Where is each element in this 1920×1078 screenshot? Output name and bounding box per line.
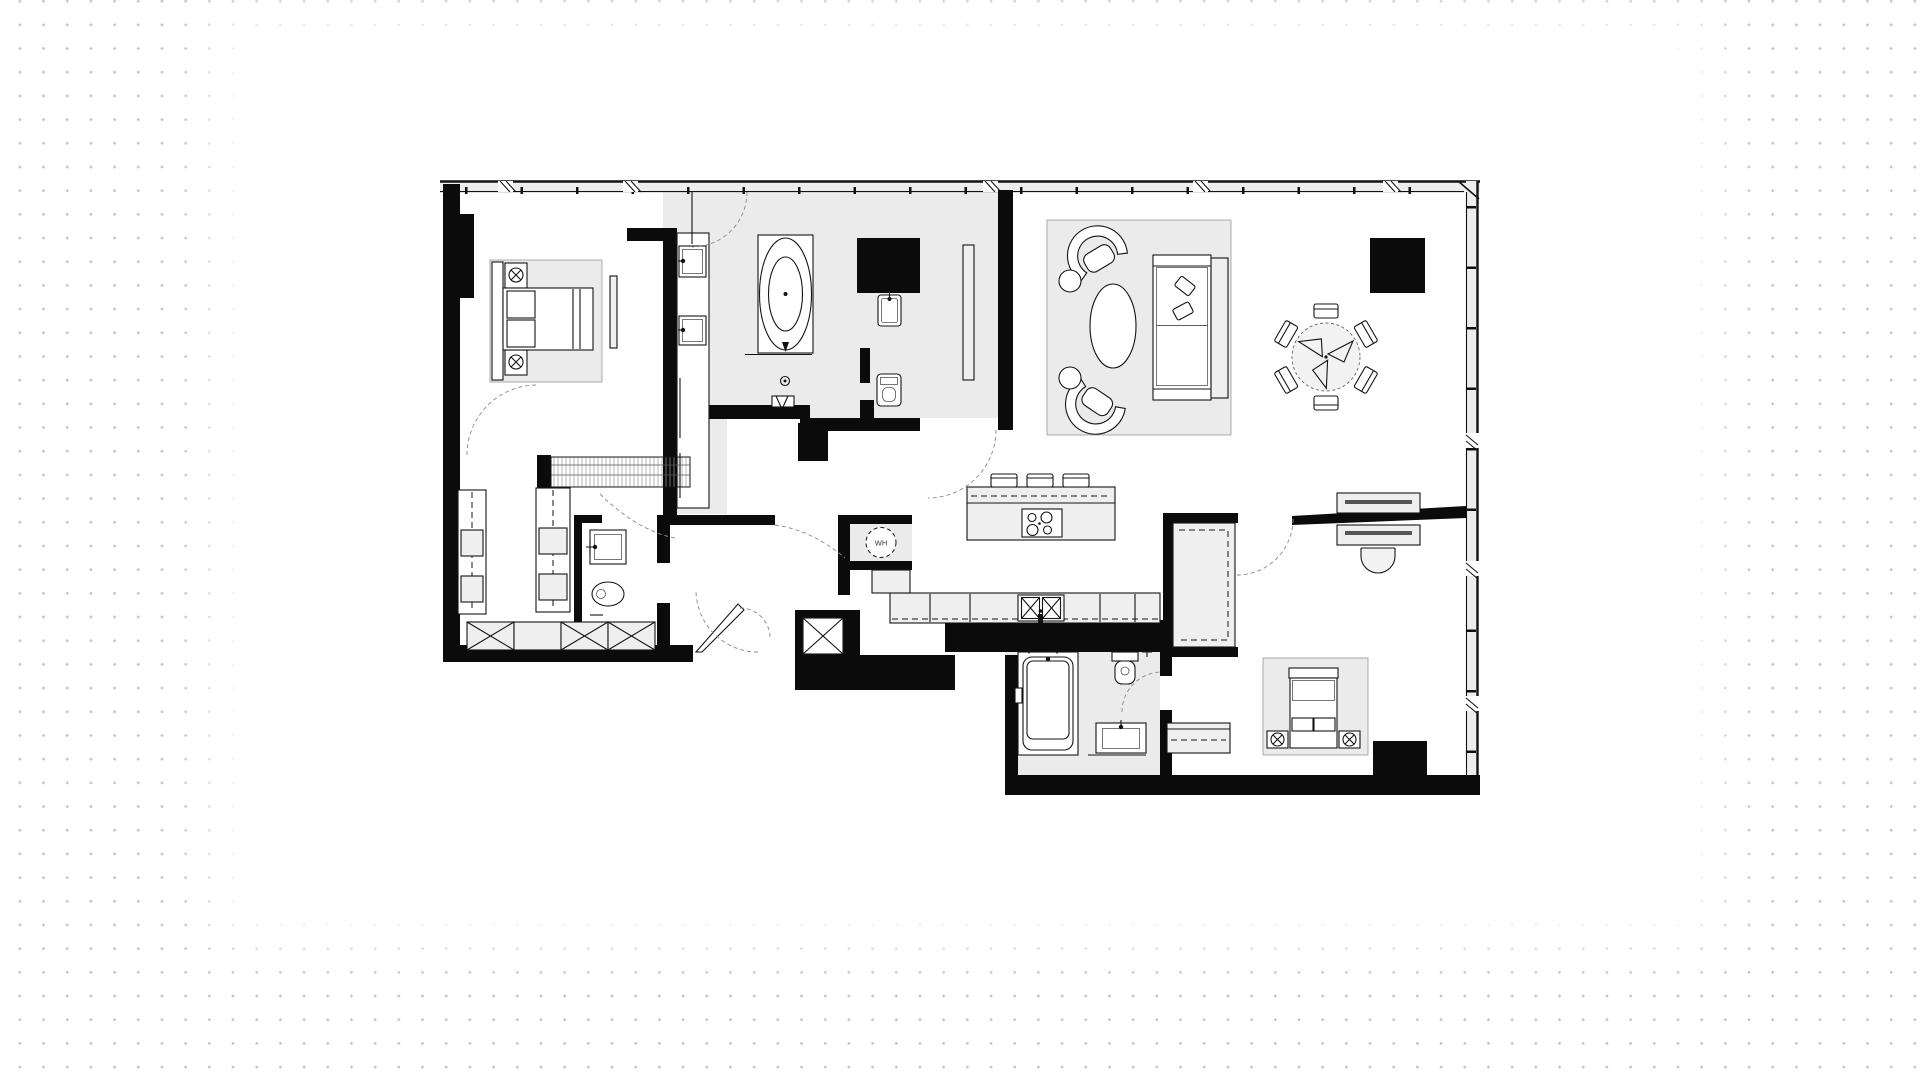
- canvas: WH: [0, 0, 1920, 1078]
- powder-entry-wall-top: [657, 515, 693, 525]
- utility-cabinet: [872, 570, 910, 593]
- foot-bench: [1289, 668, 1338, 678]
- bottom-wall-pier: [1373, 741, 1427, 795]
- bar-stool: [991, 474, 1017, 487]
- desk-edge: [1345, 500, 1412, 504]
- bath-wall-cap: [627, 228, 663, 241]
- tub-drain: [1046, 657, 1050, 661]
- pillow: [507, 320, 535, 347]
- hall-wall-stub: [537, 455, 551, 489]
- nightstand-lamp: [505, 350, 527, 375]
- powder-room: [586, 530, 626, 615]
- desk-edge: [1345, 531, 1412, 535]
- bar-stool: [1063, 474, 1089, 487]
- powder-left-wall: [574, 515, 582, 622]
- low-cabinet: [1167, 723, 1230, 753]
- sofa: [1153, 255, 1228, 400]
- kitchen-island: [967, 487, 1115, 540]
- headboard: [492, 262, 503, 380]
- wardrobe-top-wall: [1163, 513, 1238, 523]
- master-bath-floor: [663, 191, 998, 418]
- lower-section-left-wall: [1005, 655, 1018, 795]
- door-swing: [1237, 519, 1293, 575]
- bedroom-2: [1167, 523, 1368, 755]
- entry-kitchen-wall: [838, 515, 850, 595]
- water-heater: WH: [850, 524, 912, 593]
- master-bath-stub-b: [860, 400, 874, 418]
- powder-right-wall-a: [657, 525, 670, 563]
- kitchen: WH: [850, 474, 1160, 623]
- master-bedroom: [490, 260, 617, 382]
- door-swing: [740, 608, 770, 640]
- dining-area: [1274, 304, 1378, 410]
- wardrobe-bottom-wall: [1163, 647, 1238, 657]
- pillow: [1314, 718, 1335, 731]
- vanity-sink: [678, 316, 706, 345]
- cooktop-icon: [1022, 509, 1062, 537]
- wardrobe-unit: [536, 488, 570, 612]
- entry-south-wall: [795, 655, 955, 690]
- nightstand-lamp: [1339, 731, 1360, 748]
- shower-enclosure: [857, 238, 920, 293]
- kitchen-back-wall: [945, 620, 1172, 652]
- double-kitchen-sink-icon: [1018, 595, 1064, 623]
- coffee-table: [1090, 284, 1136, 368]
- entry-door-leaf: [696, 604, 744, 652]
- water-heater-label: WH: [875, 539, 888, 548]
- living-room: [1047, 215, 1231, 446]
- floor-plan: WH: [440, 178, 1485, 798]
- vanity-sink: [678, 246, 706, 277]
- master-bath-south-pier: [798, 423, 828, 461]
- window-wall-top: [440, 181, 1480, 192]
- wh-closet-bottom-wall: [850, 561, 912, 570]
- master-bath-stub-a: [860, 348, 870, 383]
- door-swing: [467, 385, 537, 455]
- shower-sink: [878, 292, 901, 326]
- built-in-bathtub: [1015, 649, 1078, 755]
- powder-room-sink: [586, 530, 626, 564]
- structural-column: [1370, 238, 1425, 293]
- side-table: [1059, 367, 1081, 389]
- mirror-panel: [610, 276, 617, 348]
- wardrobe-unit: [1173, 523, 1235, 647]
- pillow: [507, 291, 535, 318]
- nightstand-lamp: [1267, 731, 1288, 748]
- bar-stool: [1027, 474, 1053, 487]
- wardrobe-unit: [458, 490, 486, 614]
- door-swing: [775, 525, 845, 558]
- vanity-sink: [1088, 720, 1146, 755]
- built-in-cabinet: [551, 457, 690, 487]
- nightstand-lamp: [505, 263, 527, 288]
- double-bed: [1290, 678, 1337, 748]
- toilet: [877, 374, 901, 406]
- master-bath-right-wall: [998, 190, 1013, 430]
- wh-closet-top-wall: [850, 515, 912, 524]
- kitchen-counter: [890, 593, 1160, 623]
- desk-chair: [1361, 548, 1395, 573]
- entry: [696, 590, 770, 652]
- tub-soap-ledge: [1015, 688, 1022, 703]
- window-wall-right: [1458, 181, 1479, 793]
- storage-x-cabinet: [467, 622, 655, 650]
- bath-mat: [772, 396, 794, 407]
- wardrobe-back-wall: [1163, 523, 1173, 647]
- side-table: [1059, 270, 1081, 292]
- powder-top-wall: [574, 515, 602, 523]
- desk-area: [1237, 493, 1420, 575]
- entry-north-wall: [693, 515, 775, 525]
- walk-in-closet: [458, 488, 655, 650]
- glass-panel: [963, 245, 974, 380]
- toilet: [590, 582, 624, 615]
- left-wall-pier: [460, 214, 474, 298]
- powder-right-wall-b: [657, 603, 670, 650]
- pillow: [1292, 718, 1313, 731]
